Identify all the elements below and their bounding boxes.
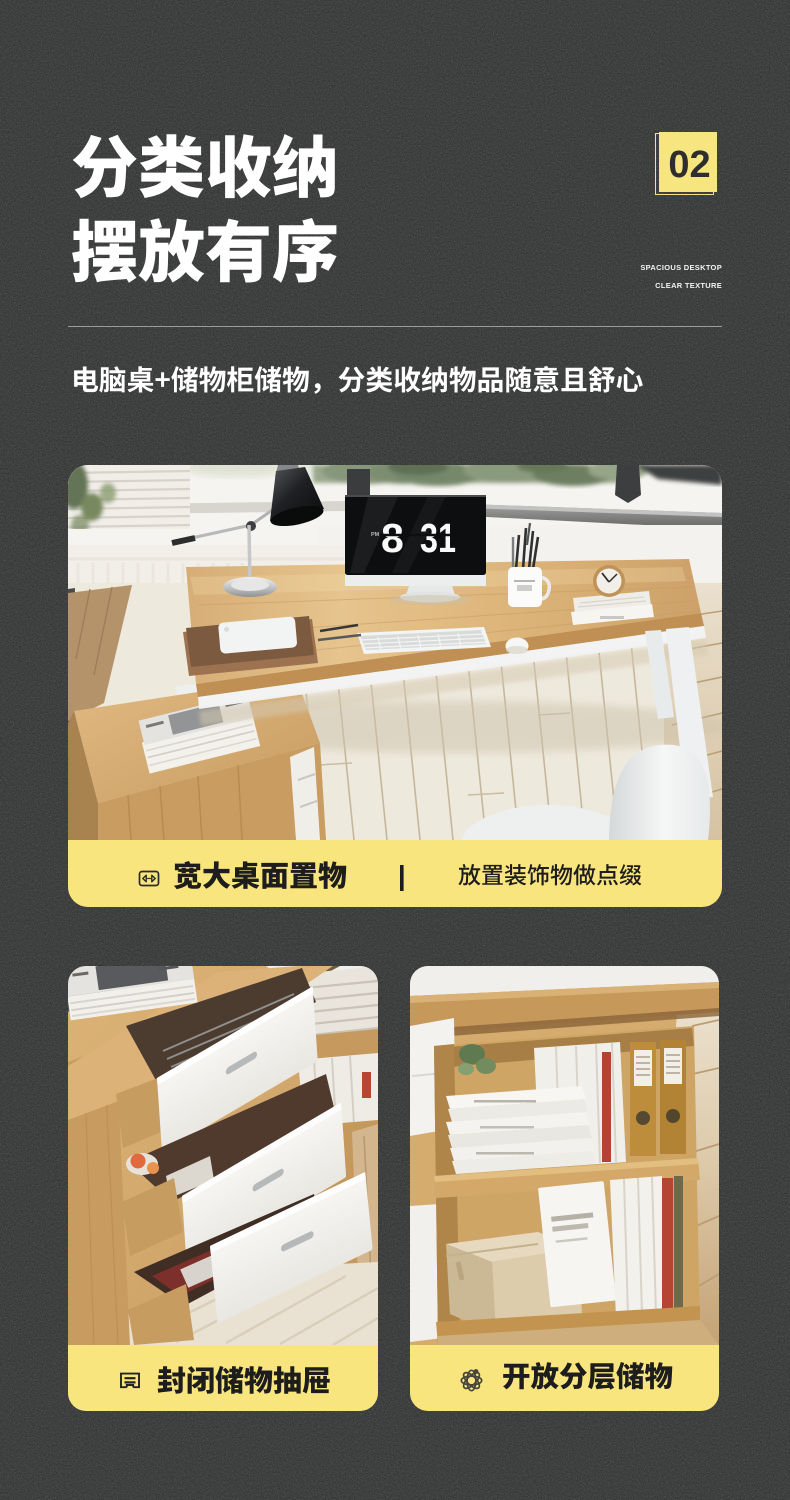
svg-text:31: 31 [420,515,456,561]
svg-text:PM: PM [371,532,380,538]
svg-text:8: 8 [381,515,404,561]
